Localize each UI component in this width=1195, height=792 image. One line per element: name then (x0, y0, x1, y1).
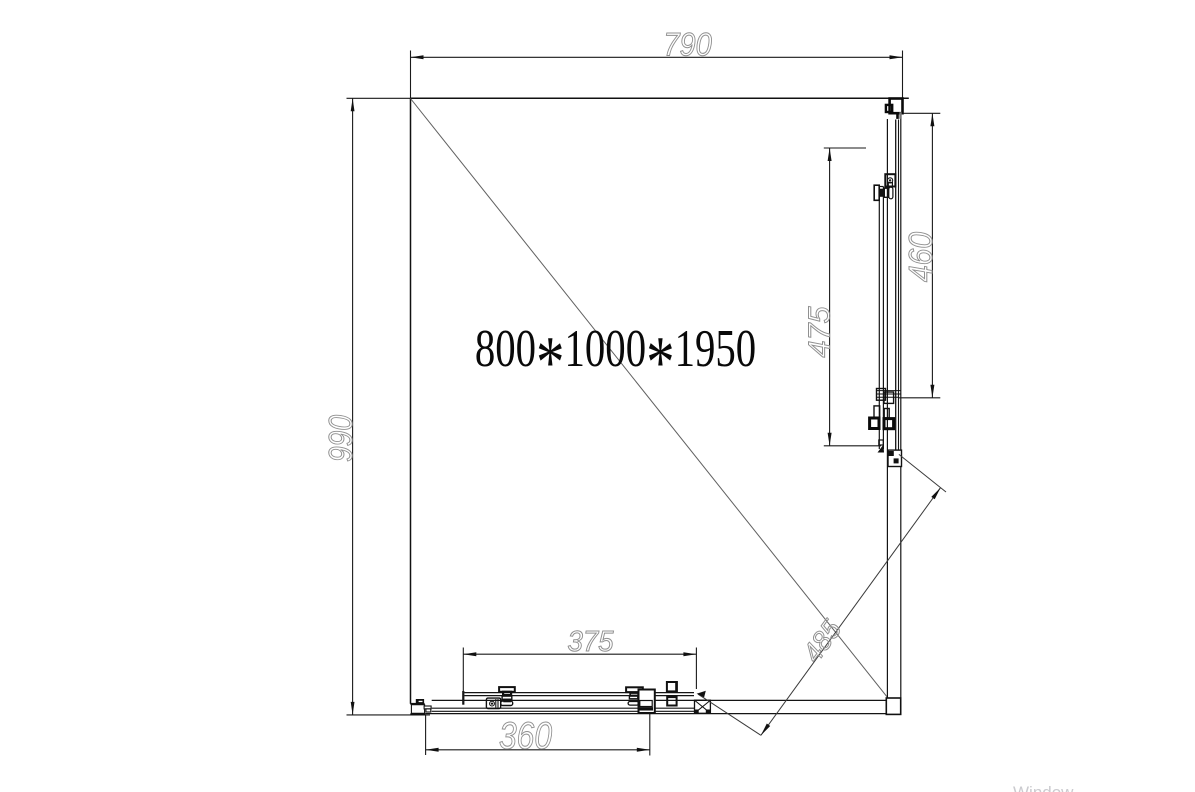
svg-text:475: 475 (801, 306, 836, 358)
svg-text:990: 990 (322, 414, 359, 462)
svg-text:Window: Window (1013, 783, 1074, 792)
svg-text:360: 360 (499, 716, 552, 758)
svg-text:790: 790 (663, 27, 712, 63)
svg-text:375: 375 (568, 626, 615, 658)
svg-text:460: 460 (903, 232, 940, 282)
